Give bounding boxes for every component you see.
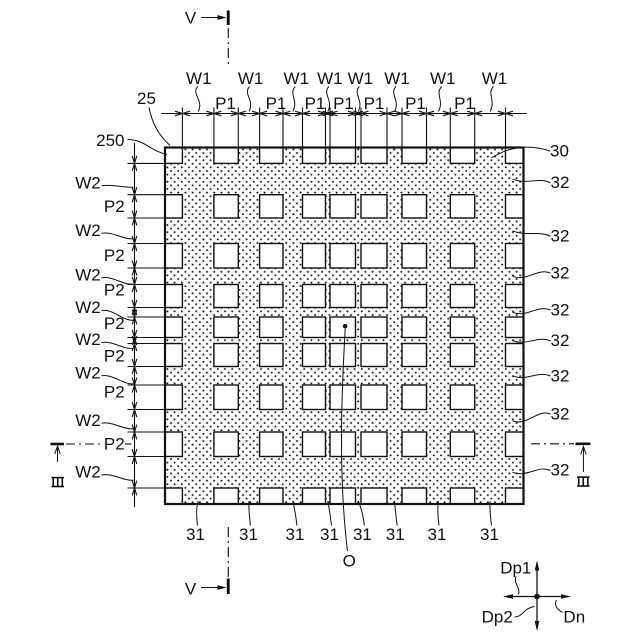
svg-text:P1: P1 [266,94,287,113]
svg-text:Dp2: Dp2 [482,608,513,627]
svg-text:Dn: Dn [563,608,585,627]
svg-text:32: 32 [551,227,570,246]
svg-text:W1: W1 [284,69,310,88]
svg-text:32: 32 [551,300,570,319]
svg-text:25: 25 [137,89,156,108]
svg-text:32: 32 [551,173,570,192]
svg-text:P2: P2 [104,281,125,300]
svg-text:W2: W2 [75,221,101,240]
svg-text:P1: P1 [305,94,326,113]
svg-text:W1: W1 [430,69,456,88]
svg-text:V: V [185,9,197,28]
svg-text:W2: W2 [75,298,101,317]
svg-text:O: O [343,552,356,571]
svg-text:P1: P1 [454,94,475,113]
svg-text:30: 30 [550,142,569,161]
svg-text:32: 32 [551,366,570,385]
svg-text:32: 32 [551,263,570,282]
svg-text:W2: W2 [75,266,101,285]
svg-text:31: 31 [353,525,372,544]
svg-text:W1: W1 [348,69,374,88]
svg-text:W1: W1 [238,69,264,88]
svg-text:31: 31 [386,525,405,544]
svg-text:31: 31 [186,525,205,544]
svg-text:250: 250 [96,131,124,150]
svg-text:V: V [185,579,197,598]
svg-text:31: 31 [480,525,499,544]
svg-text:Dp1: Dp1 [500,558,531,577]
svg-text:P2: P2 [104,435,125,454]
svg-text:W2: W2 [75,174,101,193]
svg-text:31: 31 [428,525,447,544]
svg-text:W1: W1 [317,69,343,88]
svg-text:W1: W1 [384,69,410,88]
svg-text:31: 31 [286,525,305,544]
svg-text:P1: P1 [215,94,236,113]
svg-text:31: 31 [239,525,258,544]
svg-text:P2: P2 [104,197,125,216]
svg-text:W2: W2 [75,411,101,430]
svg-text:P1: P1 [405,94,426,113]
svg-text:32: 32 [551,404,570,423]
svg-text:P2: P2 [104,347,125,366]
svg-text:P1: P1 [364,94,385,113]
svg-text:W1: W1 [482,69,508,88]
svg-text:W2: W2 [75,463,101,482]
svg-text:W2: W2 [75,364,101,383]
svg-text:W1: W1 [186,69,212,88]
svg-text:P2: P2 [104,246,125,265]
svg-text:P1: P1 [333,94,354,113]
svg-text:P2: P2 [104,383,125,402]
svg-text:32: 32 [551,461,570,480]
svg-text:32: 32 [551,331,570,350]
svg-text:W2: W2 [75,330,101,349]
svg-text:P2: P2 [104,314,125,333]
svg-text:31: 31 [320,525,339,544]
